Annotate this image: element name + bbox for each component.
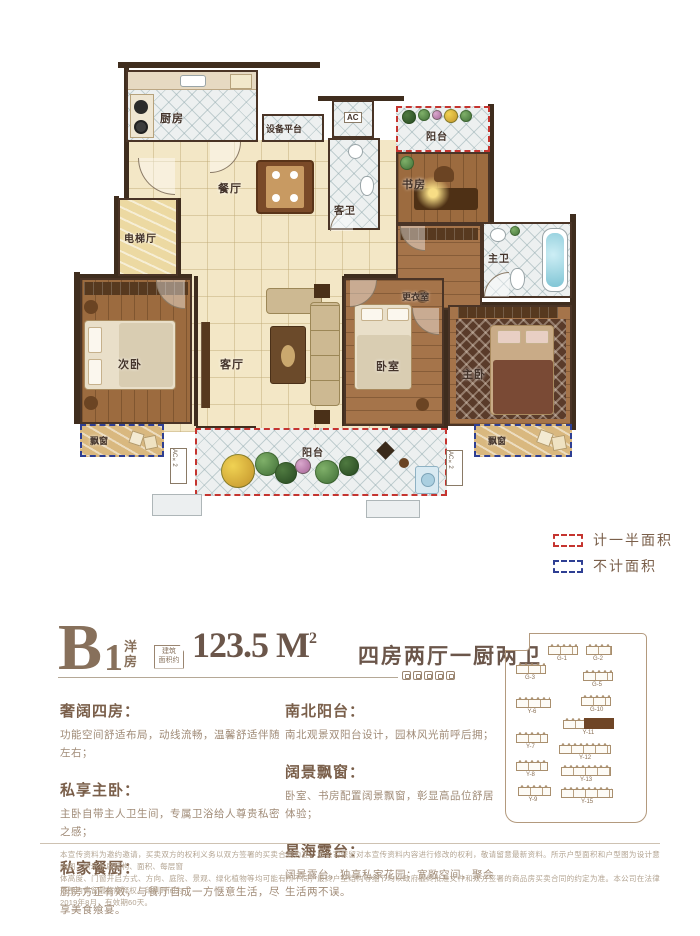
- feature-body: 卧室、书房配置阔景飘窗，彰显高品位舒居体验；: [285, 788, 495, 824]
- table-decor: [281, 345, 295, 367]
- bathtub-water: [546, 233, 564, 287]
- meander-ornament-icon: [402, 671, 455, 680]
- plate: [290, 171, 298, 179]
- pillow: [88, 327, 102, 353]
- pillow: [497, 330, 521, 344]
- disclaimer-line: 2019年8月，有效期60天。: [60, 897, 660, 909]
- sofa-main: [310, 302, 340, 406]
- balcony-bottom-label: 阳台: [302, 444, 324, 459]
- title-divider: [58, 677, 398, 678]
- unit-number: 1: [104, 636, 123, 680]
- footer-divider: [40, 843, 660, 844]
- kitchen-sink: [180, 75, 206, 87]
- legend-half-area: 计一半面积: [553, 530, 673, 550]
- unit-letter: B: [58, 618, 102, 678]
- feature-body: 主卧自带主人卫生间，专属卫浴给人尊贵私密之感；: [60, 806, 288, 842]
- area-number: 123.5 M: [192, 625, 309, 665]
- meander-unit-icon: [446, 671, 455, 680]
- dining-label: 餐厅: [218, 180, 242, 196]
- patio-table: [376, 441, 394, 459]
- blanket: [119, 323, 173, 387]
- equipment-label: 设备平台: [266, 122, 302, 135]
- siteplan-building-label: G-1: [557, 656, 567, 662]
- exterior-step: [366, 500, 420, 518]
- pillow: [387, 308, 409, 321]
- feature-block: 奢阔四房： 功能空间舒适布局，动线流畅，温馨舒适伴随左右；: [60, 700, 288, 763]
- feature-heading: 阔景飘窗：: [285, 761, 495, 782]
- siteplan-building-Y-9: [518, 787, 551, 796]
- bed: [354, 304, 412, 390]
- feature-block: 南北阳台： 南北观景双阳台设计，园林风光前呼后拥；: [285, 700, 495, 745]
- living-label: 客厅: [220, 356, 244, 372]
- plant: [275, 462, 297, 484]
- area-superscript: 2: [309, 630, 317, 647]
- dressing-label: 更衣室: [402, 290, 429, 303]
- siteplan-building-label: Y-13: [580, 777, 592, 783]
- kitchen-label: 厨房: [160, 110, 184, 126]
- wall: [194, 276, 198, 426]
- tv-cabinet: [201, 322, 210, 408]
- feature-block: 阔景飘窗： 卧室、书房配置阔景飘窗，彰显高品位舒居体验；: [285, 761, 495, 824]
- plant: [418, 109, 430, 121]
- area-value: 123.5 M2: [192, 624, 317, 666]
- legend-half-area-label: 计一半面积: [593, 530, 673, 550]
- stove-burner: [134, 120, 148, 134]
- wardrobe: [458, 307, 558, 318]
- bath-sink: [348, 144, 363, 159]
- feature-heading: 奢阔四房：: [60, 700, 288, 721]
- plant: [460, 110, 472, 122]
- ac-platform-left: AC×2: [170, 448, 187, 484]
- plant: [339, 456, 359, 476]
- study-label: 书房: [402, 176, 426, 192]
- meander-unit-icon: [424, 671, 433, 680]
- dining-table: [256, 160, 314, 214]
- pillow: [525, 330, 549, 344]
- feature-heading: 南北阳台：: [285, 700, 495, 721]
- cushion: [143, 435, 158, 450]
- bedroom3-label: 卧室: [376, 358, 400, 374]
- feature-body: 南北观景双阳台设计，园林风光前呼后拥；: [285, 727, 495, 745]
- siteplan-building-Y-6: [516, 699, 551, 708]
- plant: [444, 109, 458, 123]
- plate: [272, 194, 280, 202]
- ac2-left-label: AC×2: [171, 449, 177, 467]
- bay-left-label: 飘窗: [90, 434, 108, 447]
- toilet: [510, 268, 525, 290]
- disclaimer: 本宣传资料为邀约邀请，买卖双方的权利义务以双方签署的买卖合同为准。本公司保留对本…: [60, 849, 660, 909]
- badge-line2: 面积约: [158, 657, 180, 666]
- balcony-top-label: 阳台: [426, 128, 448, 143]
- siteplan-building-label: Y-12: [579, 755, 591, 761]
- plant: [295, 458, 311, 474]
- pillow: [88, 359, 102, 385]
- bedroom2-label: 次卧: [118, 356, 142, 372]
- plate: [290, 194, 298, 202]
- siteplan-building-label: Y-11: [583, 730, 595, 736]
- wall: [118, 62, 320, 68]
- master-bath-label: 主卫: [488, 250, 510, 265]
- plant: [510, 226, 520, 236]
- siteplan-building-label: Y-8: [526, 772, 535, 778]
- siteplan-building-label: G-3: [525, 675, 535, 681]
- plant: [315, 460, 339, 484]
- washer-door: [421, 473, 435, 487]
- meander-unit-icon: [435, 671, 444, 680]
- blue-dashed-box-icon: [553, 560, 583, 573]
- legend-not-counted: 不计面积: [553, 556, 657, 576]
- siteplan-building-label: Y-6: [528, 709, 537, 715]
- plant: [402, 110, 416, 124]
- siteplan-building-G-3: [516, 665, 546, 674]
- siteplan-building-Y-12: [559, 745, 611, 754]
- siteplan-building-G-1: [548, 646, 578, 655]
- toilet: [360, 176, 374, 196]
- siteplan-building-Y-7: [516, 734, 548, 743]
- bath-sink: [490, 228, 506, 242]
- siteplan-building-G-10: [581, 697, 611, 706]
- bay-right-label: 飘窗: [488, 434, 506, 447]
- room-balcony-bottom: [195, 428, 447, 496]
- plant: [432, 110, 442, 120]
- master-label: 主卧: [462, 366, 486, 382]
- badge-line1: 建筑: [158, 648, 180, 657]
- siteplan-building-label: G-2: [593, 656, 603, 662]
- meander-unit-icon: [413, 671, 422, 680]
- red-dashed-box-icon: [553, 534, 583, 547]
- siteplan-building-Y-15: [561, 789, 613, 798]
- exterior-step: [152, 494, 202, 516]
- siteplan-building-G-5: [583, 672, 613, 681]
- unit-type-label: 洋房: [124, 640, 139, 670]
- stove-burner: [134, 100, 148, 114]
- room-kitchen: [126, 70, 258, 142]
- side-table: [314, 284, 330, 298]
- washing-machine: [415, 466, 439, 494]
- plate: [272, 171, 280, 179]
- pillow: [361, 308, 383, 321]
- floor-plan: 厨房 设备平台 AC 阳台 餐厅 客卫 书房 电梯厅: [60, 62, 600, 522]
- siteplan-map: G-1G-2G-3G-5Y-6G-10Y-11Y-7Y-12Y-8Y-13Y-9…: [505, 633, 647, 823]
- area-badge: 建筑 面积约: [154, 645, 184, 669]
- disclaimer-line: 本宣传资料为邀约邀请，买卖双方的权利义务以双方签署的买卖合同为准。本公司保留对本…: [60, 849, 660, 873]
- siteplan-building-label: Y-7: [526, 744, 535, 750]
- bathtub: [542, 228, 568, 292]
- ac-platform-right: AC×2: [446, 450, 463, 486]
- feature-block: 私享主卧： 主卧自带主人卫生间，专属卫浴给人尊贵私密之感；: [60, 779, 288, 842]
- feature-heading: 私享主卧：: [60, 779, 288, 800]
- side-table: [314, 410, 330, 424]
- siteplan-building-G-2: [586, 646, 612, 655]
- bed: [84, 320, 176, 390]
- cushion: [551, 435, 567, 451]
- siteplan-building-label: Y-15: [581, 799, 593, 805]
- blanket: [493, 360, 553, 414]
- siteplan-notch: [505, 633, 530, 651]
- plant: [221, 454, 255, 488]
- unit-title-section: B 1 洋房 建筑 面积约 123.5 M2 四房两厅一厨两卫: [58, 616, 478, 686]
- nightstand: [84, 396, 98, 410]
- siteplan-building-label: G-5: [592, 682, 602, 688]
- plant: [400, 156, 414, 170]
- disclaimer-line: 体高度、门窗开启方式、方向、庭院、景观、绿化植物等均可能有所不同；最终户型结构等…: [60, 873, 660, 897]
- master-bed: [490, 325, 554, 415]
- siteplan-highlight: [584, 718, 614, 729]
- siteplan-building-label: Y-9: [529, 797, 538, 803]
- ac2-right-label: AC×2: [447, 451, 453, 469]
- elevator-label: 电梯厅: [124, 230, 157, 245]
- siteplan-building-label: G-10: [590, 707, 603, 713]
- desk-chair: [434, 166, 454, 182]
- ac-label: AC: [344, 112, 362, 123]
- patio-stool: [399, 458, 409, 468]
- siteplan-building-Y-11: [563, 720, 614, 729]
- fridge: [230, 74, 252, 89]
- siteplan-building-Y-13: [561, 767, 611, 776]
- meander-unit-icon: [402, 671, 411, 680]
- feature-body: 功能空间舒适布局，动线流畅，温馨舒适伴随左右；: [60, 727, 288, 763]
- nightstand: [84, 300, 98, 314]
- nightstand: [416, 398, 429, 411]
- guest-bath-label: 客卫: [334, 202, 356, 217]
- siteplan-building-Y-8: [516, 762, 548, 771]
- coffee-table: [270, 326, 306, 384]
- legend-not-counted-label: 不计面积: [593, 556, 657, 576]
